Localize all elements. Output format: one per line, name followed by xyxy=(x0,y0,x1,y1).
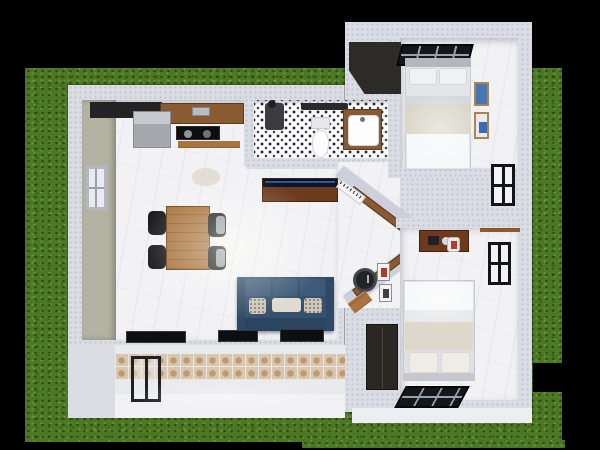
wardrobe xyxy=(366,324,398,390)
bedroom2-bed xyxy=(403,280,475,380)
porch-glass-door xyxy=(131,356,161,402)
sofa-back-cushion xyxy=(300,279,325,296)
throw-pillow xyxy=(304,298,322,313)
hall-frame xyxy=(379,284,392,302)
dining-chair xyxy=(148,211,166,235)
bed-fold xyxy=(405,310,473,322)
sofa-armrest xyxy=(237,277,245,331)
window-mullion-v xyxy=(502,167,505,203)
bed-pillow xyxy=(409,352,438,373)
south-window-top xyxy=(218,330,258,342)
desk-chair xyxy=(447,237,460,252)
dining-chair xyxy=(208,213,226,237)
bedroom2-desk xyxy=(419,230,469,252)
bed-pillow xyxy=(409,68,437,85)
towel-bar xyxy=(301,103,348,110)
lawn-bottom-strip xyxy=(302,440,565,448)
chair-accent xyxy=(451,241,457,249)
cooktop xyxy=(176,126,220,140)
frame-art xyxy=(383,289,389,298)
door-mid-post xyxy=(145,359,148,399)
throw-pillow xyxy=(249,298,266,314)
pot xyxy=(184,130,192,138)
sofa-back-cushion xyxy=(246,279,271,296)
west-window-mullion-v xyxy=(95,169,97,207)
bedroom1-bed xyxy=(405,58,471,170)
dining-table xyxy=(166,206,210,270)
sofa-back-cushion xyxy=(273,279,298,296)
bed-blanket xyxy=(405,104,471,134)
bed-sheet-lit xyxy=(405,282,473,310)
toilet xyxy=(311,117,330,159)
pot xyxy=(203,130,211,138)
bed-foot-rail xyxy=(403,373,475,381)
west-window xyxy=(86,166,107,210)
clock-hand xyxy=(367,275,369,283)
bedroom2-skylight-grid xyxy=(394,386,470,408)
dining-chair xyxy=(208,246,226,270)
bedroom2-window xyxy=(488,242,511,285)
bed-pillow xyxy=(439,68,467,85)
desk-laptop xyxy=(428,236,439,245)
bedroom2-top-wall xyxy=(396,218,520,228)
refrigerator-top xyxy=(134,112,170,124)
window-mullion-v xyxy=(498,245,501,282)
toilet-tank xyxy=(311,117,330,129)
south-window-top xyxy=(126,331,186,343)
wardrobe-seam xyxy=(382,327,383,389)
vanity xyxy=(343,109,382,150)
shower-mixer xyxy=(265,103,284,130)
bed-headboard xyxy=(405,58,471,67)
bed-blanket xyxy=(405,322,473,350)
shower-head xyxy=(268,100,276,108)
chair-seat xyxy=(216,216,225,234)
porch-side-wall xyxy=(68,345,115,418)
bathroom-left-wall xyxy=(244,98,254,166)
chair-seat xyxy=(216,249,225,267)
bedroom1-wall-art xyxy=(474,112,489,139)
sofa-armrest xyxy=(326,277,334,331)
wall-clock xyxy=(353,268,377,292)
hall-frame xyxy=(377,263,390,281)
bed-sheet-lit xyxy=(407,134,469,168)
sofa xyxy=(237,277,334,331)
floorplan-render xyxy=(0,0,600,450)
kitchen-sink xyxy=(192,107,210,116)
bedroom1-wall-art xyxy=(474,82,489,106)
south-window-top xyxy=(280,329,324,342)
bed-fold xyxy=(405,96,471,104)
kitchen-shelf xyxy=(178,141,240,148)
west-wall-face xyxy=(82,100,116,340)
bedroom2-shelf xyxy=(480,228,520,232)
throw-pillow xyxy=(272,298,301,312)
frame-art xyxy=(381,268,387,277)
toilet-bowl xyxy=(312,130,329,158)
vanity-faucet xyxy=(360,117,365,122)
yard-notch xyxy=(533,363,562,392)
bed-pillow xyxy=(441,352,470,373)
refrigerator xyxy=(133,111,171,148)
tv-console xyxy=(262,178,338,202)
tv-console-blue-light xyxy=(265,181,335,183)
art-motif xyxy=(479,122,487,133)
wing-outer-slab xyxy=(352,408,532,423)
dining-chair xyxy=(148,245,166,269)
bedroom1-window xyxy=(491,164,515,206)
